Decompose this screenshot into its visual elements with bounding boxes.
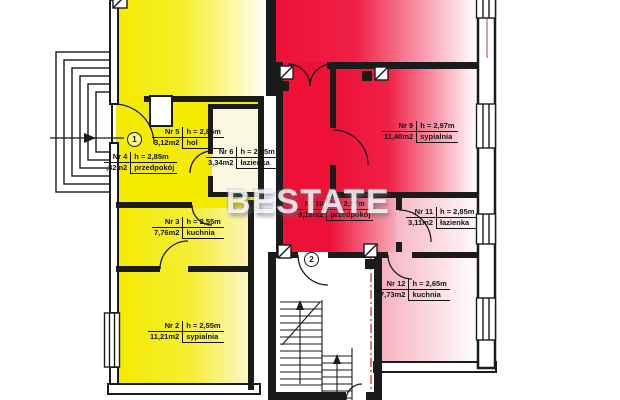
- room-height: h = 2,97m: [416, 121, 457, 132]
- room-number: Nr 3: [152, 217, 182, 228]
- room-name: łazienka: [236, 158, 277, 169]
- watermark: BESTATE: [226, 183, 390, 221]
- room-number: Nr 4: [104, 152, 130, 163]
- room-fill-topright: [276, 0, 477, 62]
- room-height: h = 2,85m: [436, 207, 477, 218]
- room-number: Nr 2: [148, 321, 182, 332]
- room-area: 3,34m2: [206, 158, 236, 169]
- entrance-marker-2: 2: [304, 252, 319, 267]
- room-number: Nr 5: [152, 127, 182, 138]
- room-label-nr5: Nr 5h = 2,85m 3,12m2hol: [152, 127, 224, 149]
- room-label-nr6: Nr 6h = 2,85m 3,34m2łazienka: [206, 147, 278, 169]
- room-name: łazienka: [436, 218, 477, 229]
- room-label-nr4: Nr 4h = 2,85m ,82m2przedpokój: [104, 152, 177, 174]
- room-area: 7,76m2: [152, 228, 182, 239]
- room-area: 3,12m2: [152, 138, 182, 149]
- room-area: 7,73m2: [378, 290, 408, 301]
- room-area: 11,21m2: [148, 332, 182, 343]
- room-area: ,82m2: [104, 163, 130, 174]
- entrance-marker-1: 1: [127, 132, 142, 147]
- room-area: 11,40m2: [382, 132, 416, 143]
- room-number: Nr 12: [378, 279, 408, 290]
- room-height: h = 2,55m: [182, 321, 223, 332]
- staircase: [280, 300, 352, 400]
- room-height: h = 2,55m: [182, 217, 223, 228]
- room-label-nr11: Nr 11h = 2,85m 3,11m2łazienka: [406, 207, 477, 229]
- room-number: Nr 6: [206, 147, 236, 158]
- room-number: Nr 9: [382, 121, 416, 132]
- room-name: sypialnia: [182, 332, 223, 343]
- room-name: kuchnia: [182, 228, 223, 239]
- wall-pillar: [150, 96, 172, 126]
- room-height: h = 2,85m: [236, 147, 277, 158]
- room-height: h = 2,65m: [408, 279, 449, 290]
- room-label-nr12: Nr 12h = 2,65m 7,73m2kuchnia: [378, 279, 450, 301]
- room-area: 3,11m2: [406, 218, 436, 229]
- floorplan: Nr 5h = 2,85m 3,12m2hol Nr 4h = 2,85m ,8…: [0, 0, 620, 400]
- room-height: h = 2,85m: [182, 127, 223, 138]
- room-name: sypialnia: [416, 132, 457, 143]
- room-height: h = 2,85m: [130, 152, 177, 163]
- room-label-nr9: Nr 9h = 2,97m 11,40m2sypialnia: [382, 121, 458, 143]
- room-name: przedpokój: [130, 163, 177, 174]
- room-label-nr3: Nr 3h = 2,55m 7,76m2kuchnia: [152, 217, 224, 239]
- room-fill-przedpokoj-nr10a: [283, 62, 330, 252]
- room-label-nr2: Nr 2h = 2,55m 11,21m2sypialnia: [148, 321, 224, 343]
- entrance-arrow: [50, 133, 124, 143]
- room-name: kuchnia: [408, 290, 449, 301]
- room-fill-topleft: [116, 0, 264, 96]
- room-number: Nr 11: [406, 207, 436, 218]
